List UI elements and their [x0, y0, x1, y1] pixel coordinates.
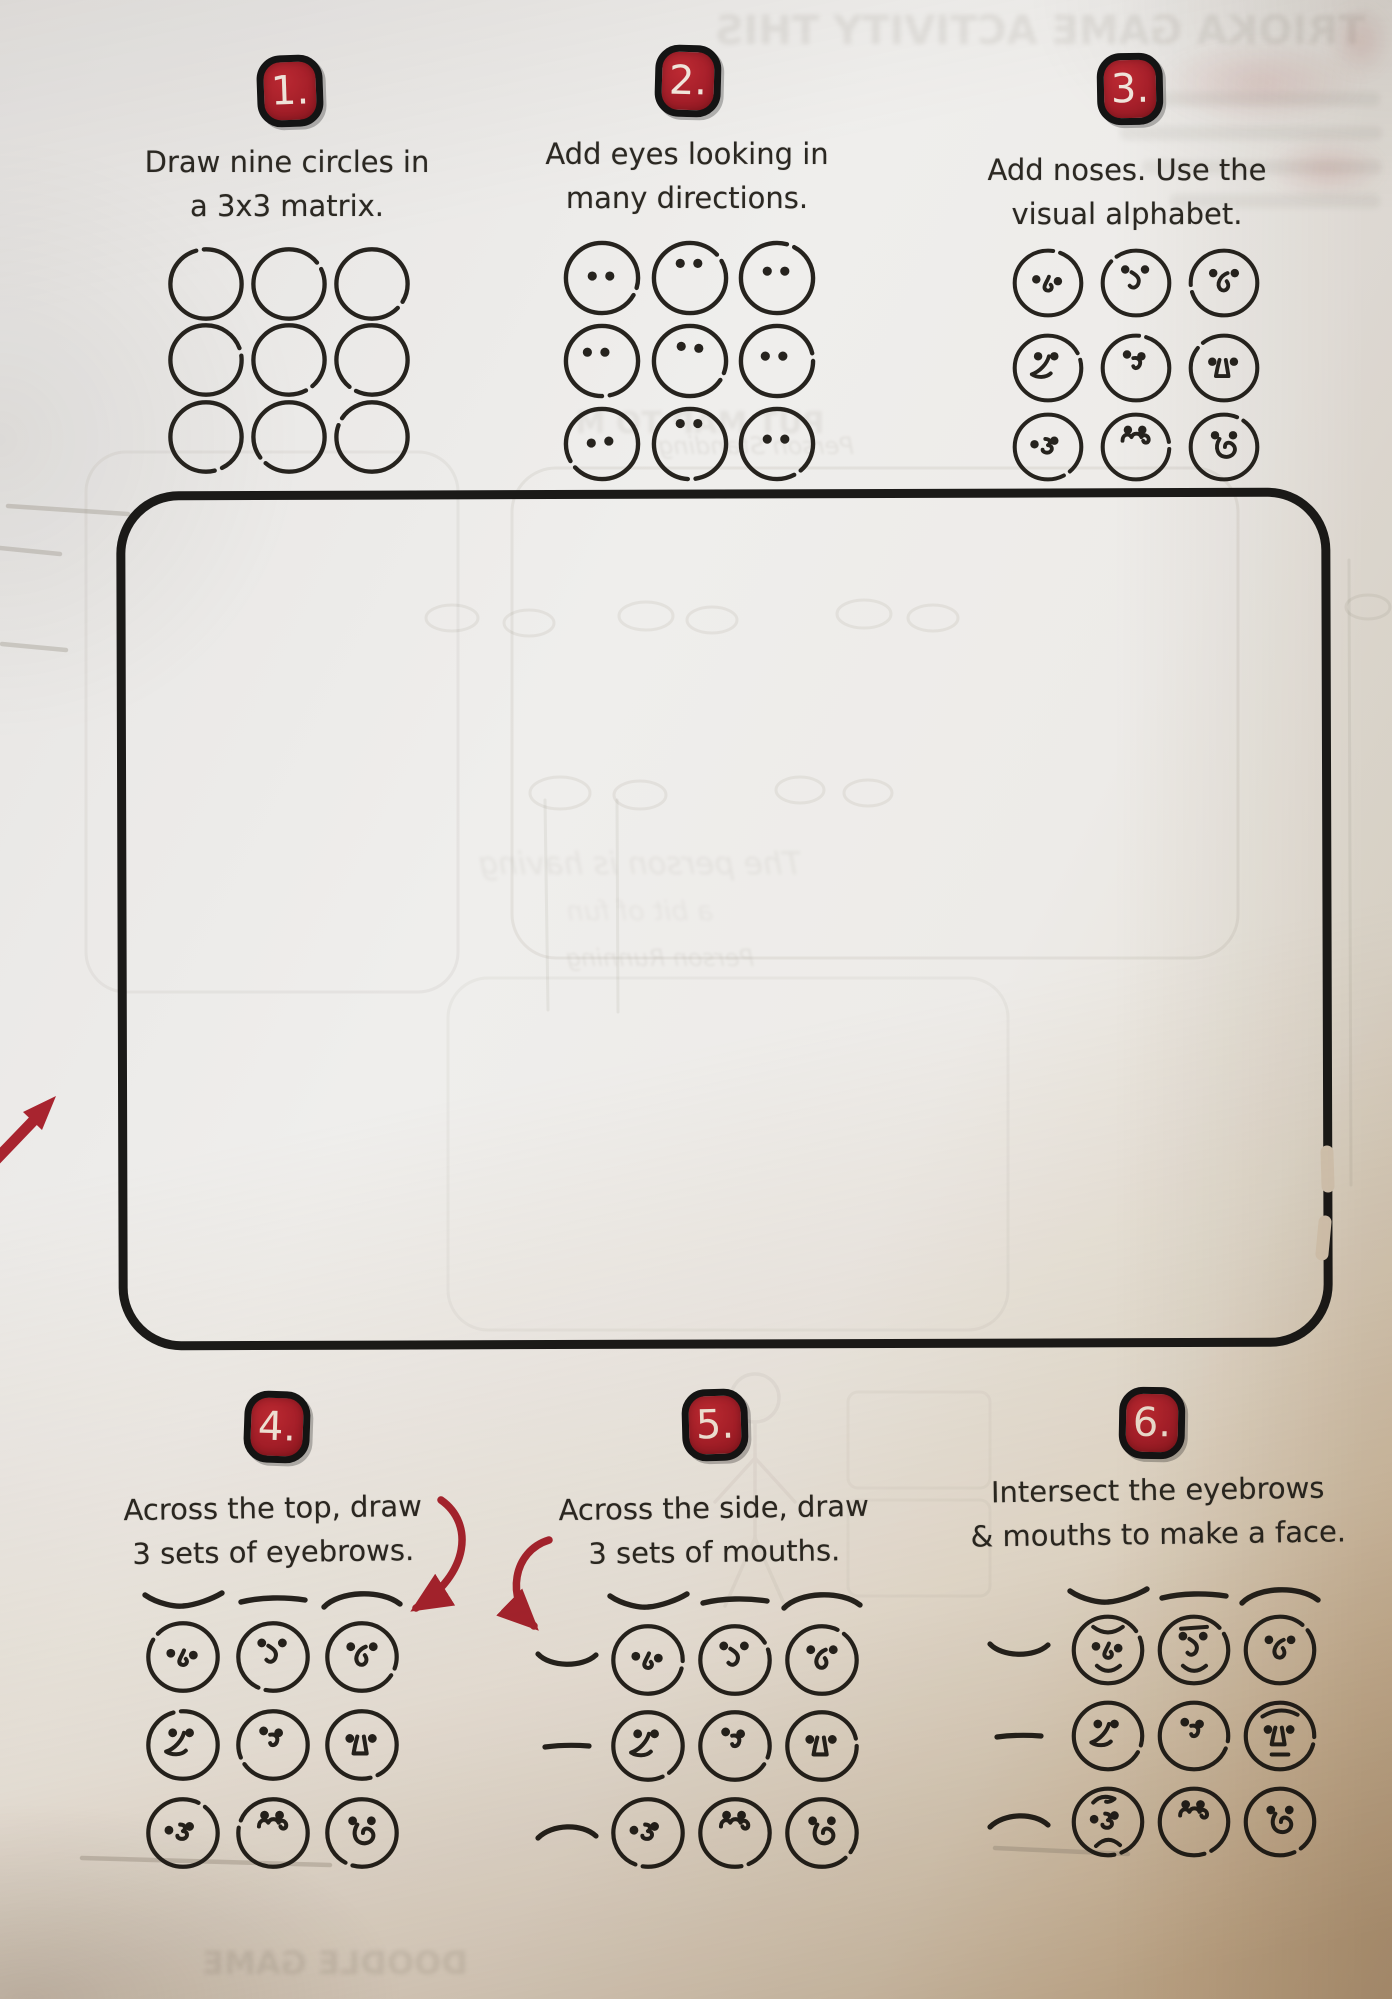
instruction-line: Intersect the eyebrows: [917, 1465, 1392, 1516]
step-6-instruction: Intersect the eyebrows& mouths to make a…: [917, 1465, 1392, 1560]
step-4-badge: 4.: [243, 1390, 311, 1464]
step-6-badge: 6.: [1118, 1386, 1185, 1459]
book-page-photo: TRIOKA GAME ACTIVITY THISPUT MAP TO MPer…: [0, 0, 1392, 1999]
instruction-line: & mouths to make a face.: [918, 1509, 1392, 1560]
step-2-badge: 2.: [654, 44, 722, 118]
step-2-instruction: Add eyes looking inmany directions.: [447, 132, 927, 220]
instruction-line: Across the top, draw: [32, 1483, 513, 1534]
instruction-line: Add noses. Use the: [887, 148, 1367, 192]
instruction-line: 3 sets of mouths.: [474, 1527, 955, 1578]
step-3-instruction: Add noses. Use thevisual alphabet.: [887, 148, 1367, 236]
step-5-badge: 5.: [681, 1388, 749, 1462]
printed-text-layer: 1.Draw nine circles ina 3x3 matrix.2.Add…: [0, 0, 1392, 1999]
instruction-line: visual alphabet.: [887, 192, 1367, 236]
step-1-badge: 1.: [256, 54, 324, 128]
instruction-line: Add eyes looking in: [447, 132, 927, 176]
step-4-instruction: Across the top, draw3 sets of eyebrows.: [32, 1483, 513, 1578]
instruction-line: 3 sets of eyebrows.: [33, 1527, 514, 1578]
step-5-instruction: Across the side, draw3 sets of mouths.: [473, 1483, 954, 1578]
instruction-line: Across the side, draw: [473, 1483, 954, 1534]
instruction-line: many directions.: [447, 176, 927, 220]
step-3-badge: 3.: [1096, 52, 1163, 125]
